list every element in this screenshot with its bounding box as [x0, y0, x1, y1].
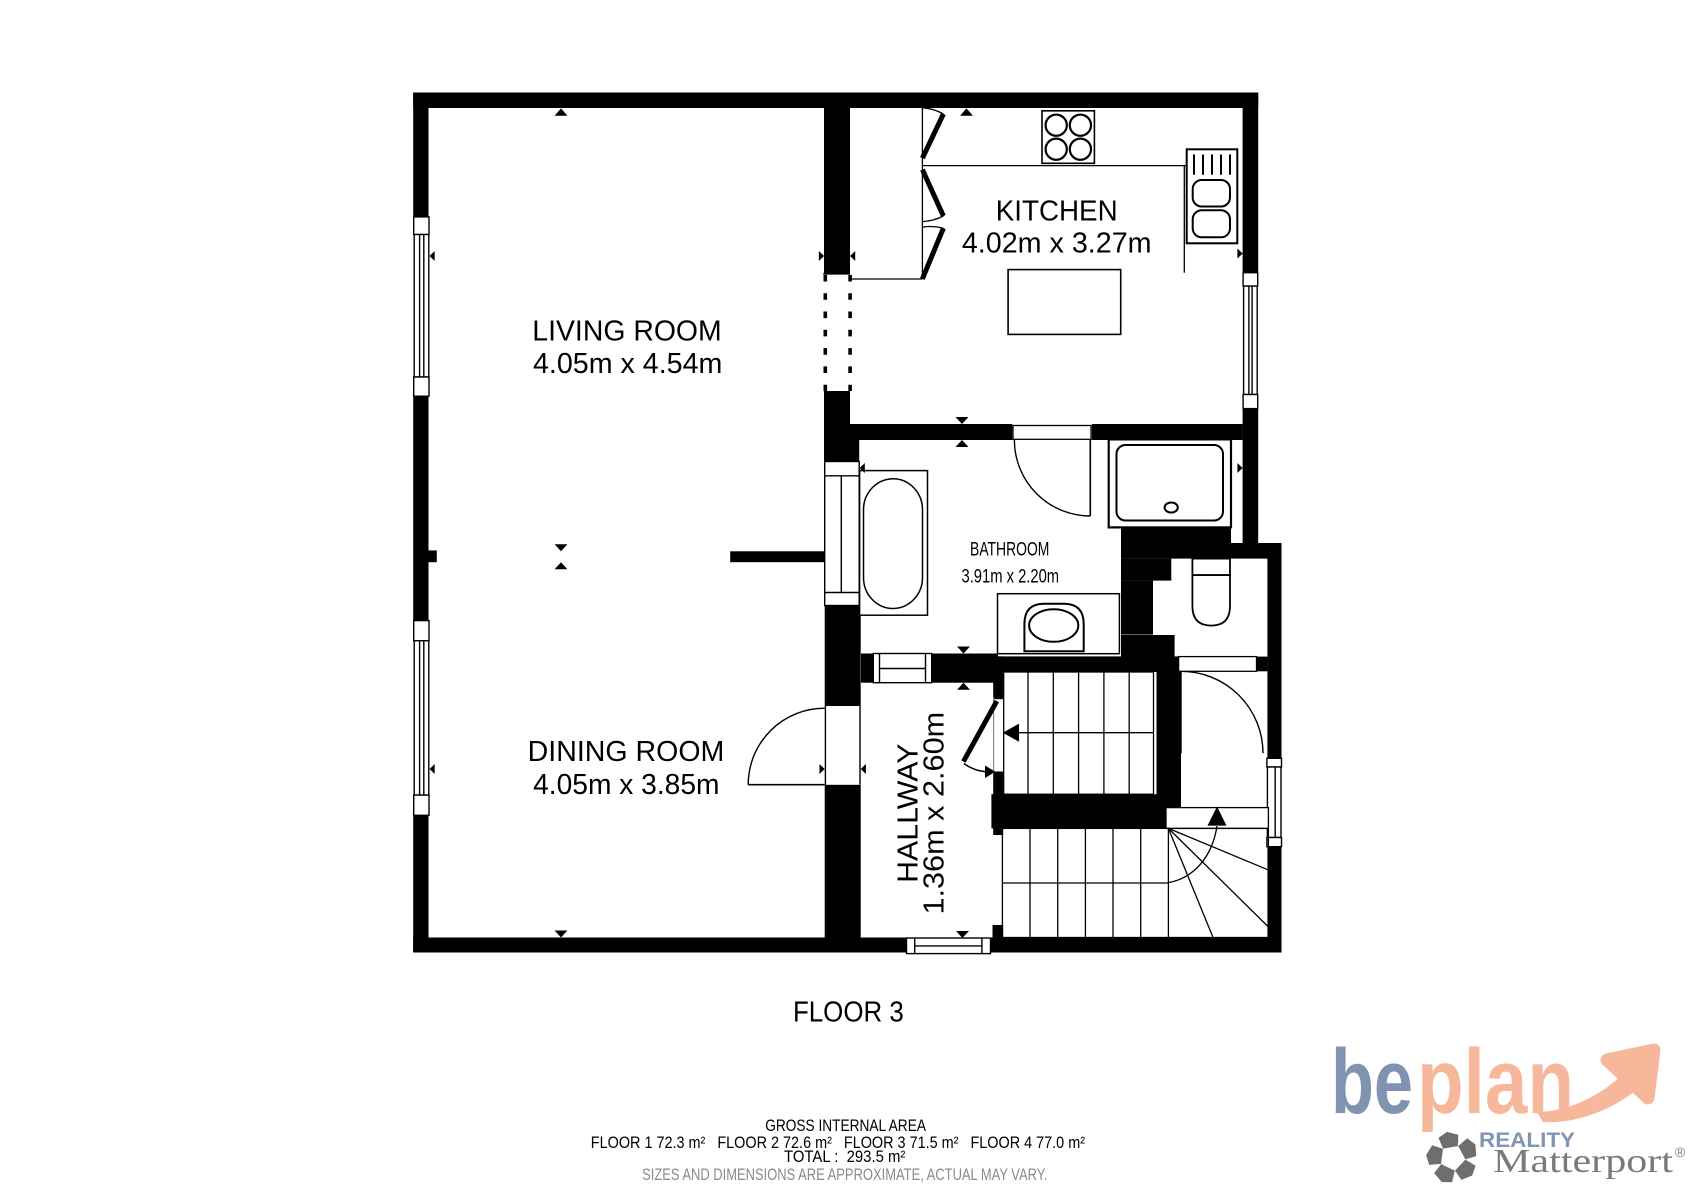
svg-text:GROSS INTERNAL AREA: GROSS INTERNAL AREA — [765, 1117, 926, 1135]
svg-text:3.91m x 2.20m: 3.91m x 2.20m — [962, 566, 1060, 588]
svg-text:be: be — [1331, 1031, 1413, 1133]
svg-text:FLOOR 3: FLOOR 3 — [793, 997, 904, 1029]
svg-text:Matterport: Matterport — [1493, 1143, 1674, 1180]
svg-text:BATHROOM: BATHROOM — [970, 539, 1049, 561]
svg-text:4.05m x 3.85m: 4.05m x 3.85m — [533, 769, 719, 801]
svg-text:1.36m x 2.60m: 1.36m x 2.60m — [919, 712, 951, 915]
svg-text:KITCHEN: KITCHEN — [996, 195, 1118, 227]
svg-text:4.05m x 4.54m: 4.05m x 4.54m — [533, 348, 722, 380]
svg-text:SIZES AND DIMENSIONS ARE APPRO: SIZES AND DIMENSIONS ARE APPROXIMATE, AC… — [642, 1166, 1047, 1184]
svg-text:4.02m x 3.27m: 4.02m x 3.27m — [962, 227, 1152, 259]
svg-text:®: ® — [1675, 1144, 1686, 1160]
svg-text:LIVING ROOM: LIVING ROOM — [532, 316, 721, 348]
svg-text:DINING ROOM: DINING ROOM — [528, 736, 725, 768]
svg-text:TOTAL : 293.5 m²: TOTAL : 293.5 m² — [784, 1148, 906, 1166]
